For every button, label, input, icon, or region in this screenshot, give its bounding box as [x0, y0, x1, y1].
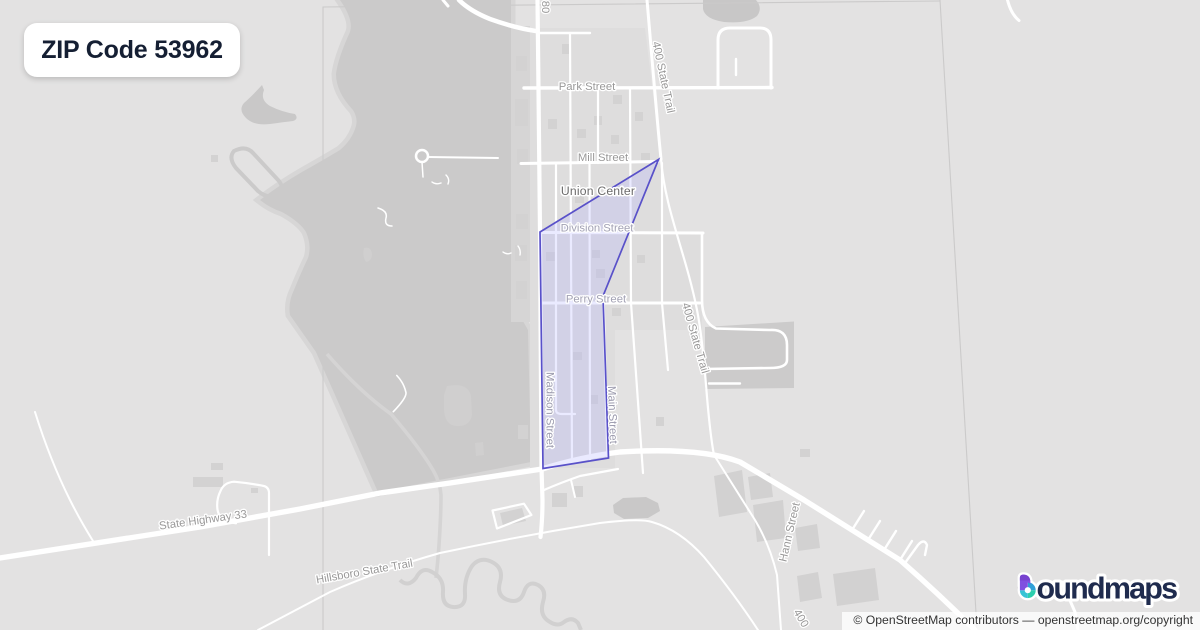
svg-text:Park Street: Park Street [559, 81, 616, 93]
svg-text:Mill Street: Mill Street [578, 152, 629, 164]
svg-text:Union Center: Union Center [561, 184, 635, 198]
svg-text:Perry Street: Perry Street [566, 294, 627, 306]
svg-text:80: 80 [539, 1, 551, 14]
svg-text:oundmaps: oundmaps [1037, 572, 1178, 606]
svg-text:Main Street: Main Street [605, 386, 619, 445]
svg-text:Division Street: Division Street [561, 223, 635, 235]
svg-text:Madison Street: Madison Street [544, 372, 556, 449]
